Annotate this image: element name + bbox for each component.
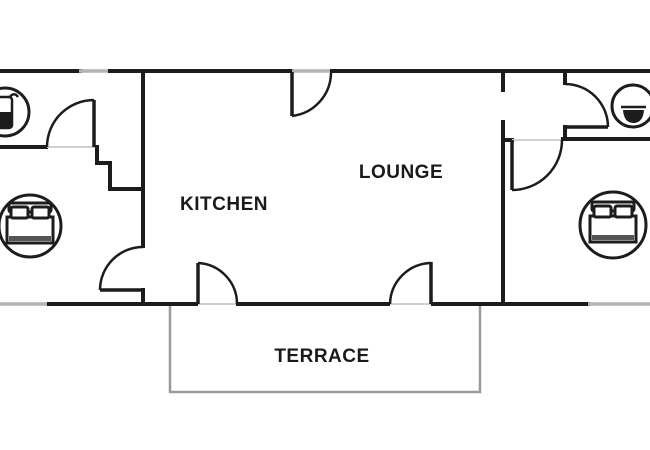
entrance-door-arc bbox=[292, 73, 331, 116]
left-bedroom-fixture bbox=[0, 195, 61, 257]
left-bedroom-door-arc bbox=[100, 247, 143, 290]
floor-plan: KITCHEN LOUNGE TERRACE bbox=[0, 0, 650, 450]
double-bed-icon bbox=[7, 203, 53, 243]
left-bathroom-door-arc bbox=[47, 100, 94, 147]
interior-walls bbox=[0, 70, 650, 306]
lounge-terrace-door-arc bbox=[390, 263, 431, 304]
double-bed-icon bbox=[590, 202, 636, 242]
right-bathroom-door-arc bbox=[565, 84, 608, 127]
kitchen-label: KITCHEN bbox=[180, 194, 268, 216]
kitchen-terrace-door-arc bbox=[198, 263, 237, 304]
left-bathroom-fixture bbox=[0, 88, 29, 136]
right-bedroom-fixture bbox=[580, 192, 646, 258]
exterior-walls bbox=[0, 71, 650, 304]
lounge-label: LOUNGE bbox=[359, 162, 443, 184]
right-bathroom-fixture bbox=[612, 85, 650, 127]
left-bathroom-jog-wall bbox=[95, 147, 145, 189]
right-bedroom-door-arc bbox=[512, 140, 562, 190]
floor-plan-drawing bbox=[0, 0, 650, 450]
terrace-label: TERRACE bbox=[274, 346, 369, 368]
